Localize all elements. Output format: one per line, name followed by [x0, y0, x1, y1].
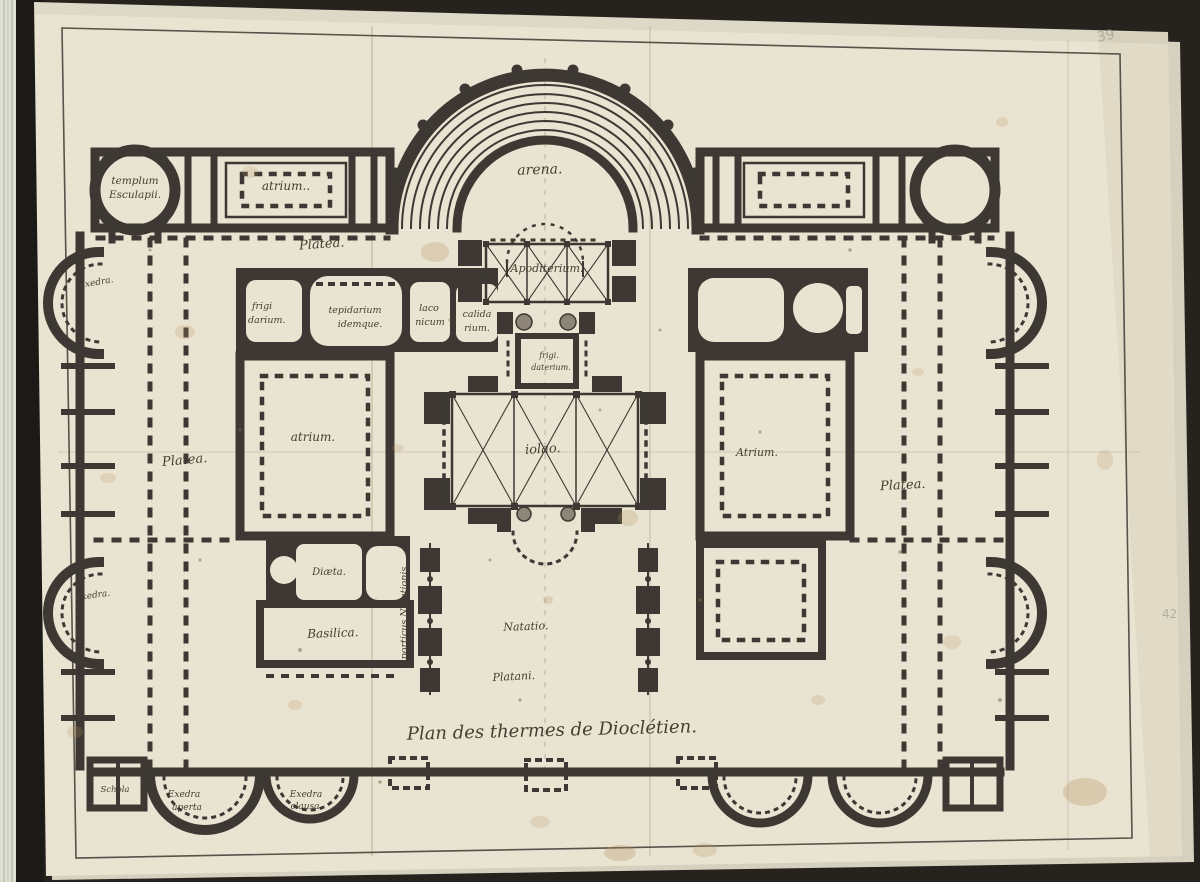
label-tepidarium-line2: idemque. [338, 319, 383, 330]
label-basilica: Basilica. [306, 625, 359, 641]
label-exedra-aperta-line2: aperta [172, 803, 202, 813]
label-natatio: Natatio. [502, 619, 548, 634]
label-laconicum-line1: laco [419, 303, 439, 314]
label-frigidarium-line2: darium. [248, 315, 285, 326]
label-schola: Schola [101, 785, 130, 795]
label-platea-right: Platea. [879, 477, 926, 494]
label-frigidarium-line1: frigi [251, 301, 272, 312]
label-tepidarium-line1: tepidarium [328, 305, 381, 316]
scanned-manuscript-page: templum Esculapii. atrium.. arena. Plate… [0, 0, 1200, 882]
label-atrium-right: Atrium. [735, 446, 778, 459]
label-atrium-left: atrium. [291, 430, 335, 444]
label-porticus: porticus Natationis [399, 567, 410, 660]
label-exedra-clausa-line2: clausa [290, 802, 319, 812]
label-platani: Platani. [491, 669, 535, 684]
label-atrium-top-left: atrium.. [262, 179, 310, 193]
label-arena: arena. [517, 161, 563, 179]
label-central-hall: iolao. [525, 441, 561, 458]
right-bath-rooms [688, 268, 868, 352]
label-frigidarium-small-line2: daterium. [531, 363, 571, 372]
label-exedra-clausa-line1: Exedra [289, 790, 322, 800]
label-apodyterium: Apoditerium. [510, 262, 584, 275]
edge-page-number: 42 [1162, 607, 1177, 621]
plan-drawing-canvas: templum Esculapii. atrium.. arena. Plate… [0, 0, 1200, 882]
label-laconicum-line2: nicum [415, 317, 445, 328]
label-diaeta: Diæta. [311, 567, 346, 578]
label-calidarium-line1: calida [463, 309, 492, 320]
label-exedra-aperta-line1: Exedra [167, 790, 200, 800]
label-calidarium-line2: rium. [464, 323, 490, 334]
label-templum-line2: Esculapii. [108, 189, 161, 201]
label-templum-line1: templum [111, 175, 158, 187]
label-frigidarium-small-line1: frigi. [538, 351, 559, 360]
